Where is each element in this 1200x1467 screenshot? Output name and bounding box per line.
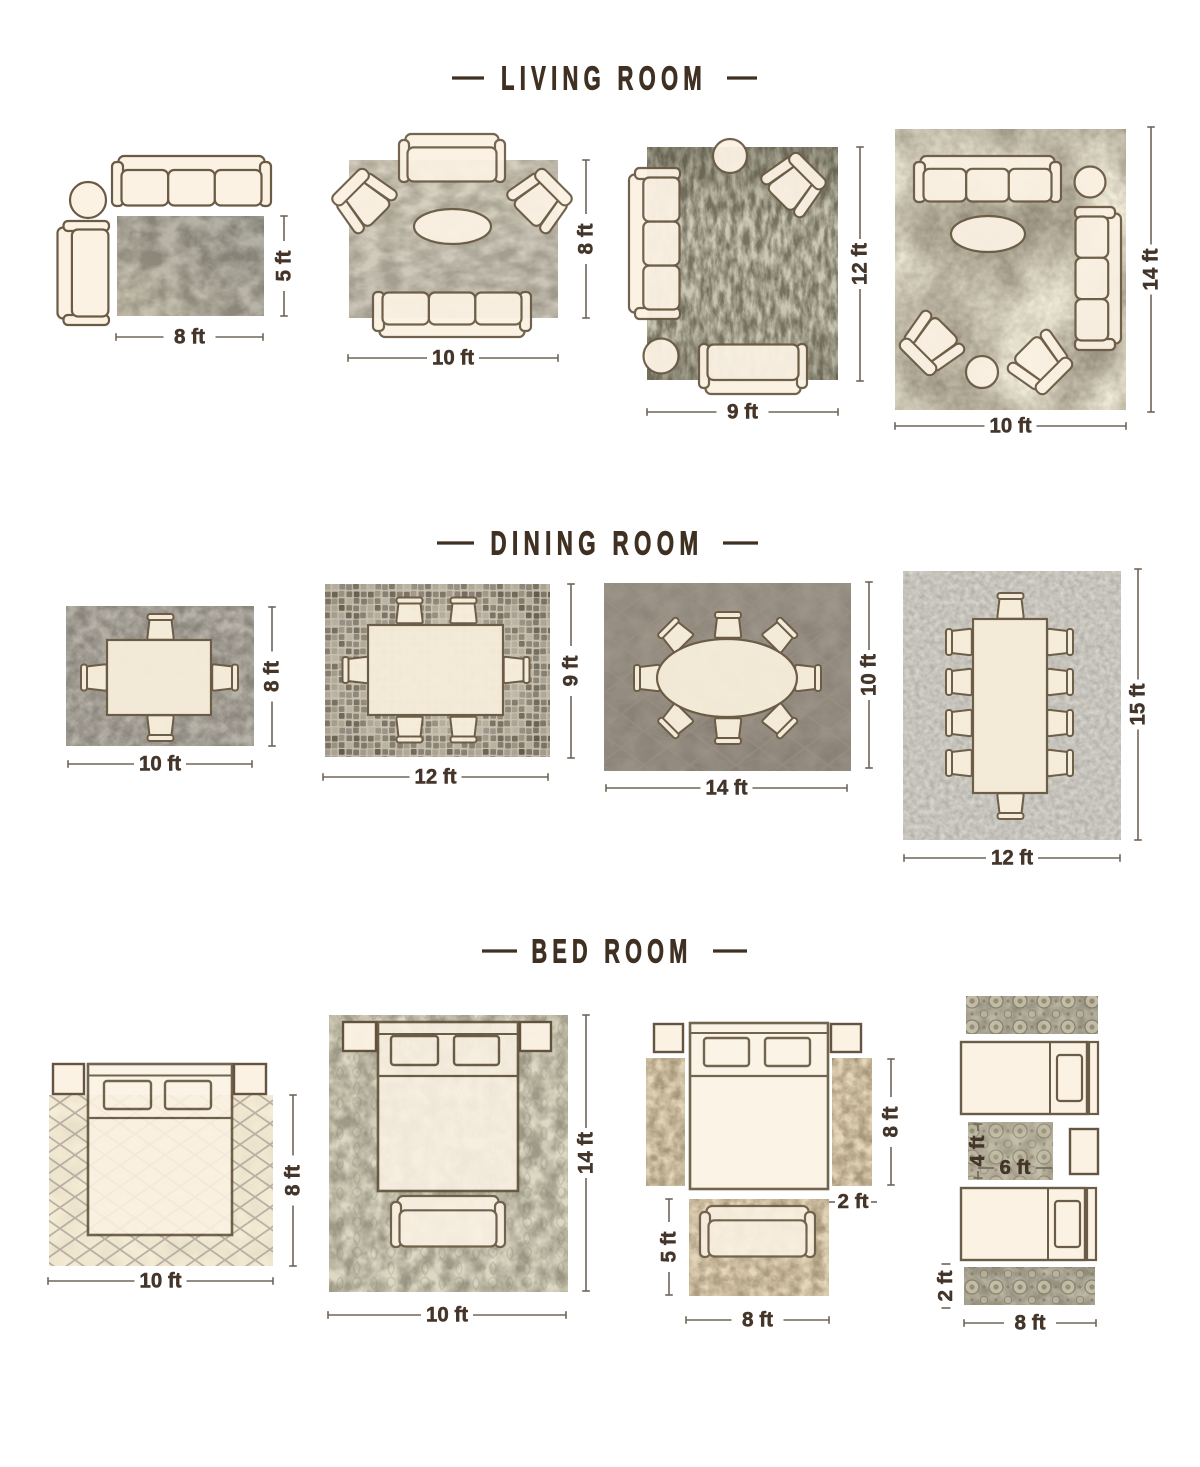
- svg-text:BED ROOM: BED ROOM: [532, 933, 693, 970]
- svg-text:10 ft: 10 ft: [990, 415, 1032, 438]
- svg-text:12 ft: 12 ft: [991, 847, 1033, 870]
- svg-text:5 ft: 5 ft: [273, 250, 296, 281]
- svg-text:8 ft: 8 ft: [261, 661, 284, 692]
- svg-text:6 ft: 6 ft: [1000, 1157, 1031, 1179]
- svg-text:14 ft: 14 ft: [706, 777, 748, 800]
- svg-text:9 ft: 9 ft: [560, 655, 583, 686]
- svg-text:10 ft: 10 ft: [858, 654, 881, 696]
- svg-text:15 ft: 15 ft: [1127, 684, 1150, 726]
- svg-text:4 ft: 4 ft: [967, 1135, 989, 1166]
- svg-text:10 ft: 10 ft: [139, 753, 181, 776]
- svg-text:10 ft: 10 ft: [426, 1304, 468, 1327]
- svg-text:12 ft: 12 ft: [415, 766, 457, 789]
- svg-text:8 ft: 8 ft: [282, 1165, 305, 1196]
- svg-text:8 ft: 8 ft: [742, 1309, 773, 1332]
- svg-text:8 ft: 8 ft: [880, 1106, 903, 1137]
- svg-text:14 ft: 14 ft: [1140, 249, 1163, 291]
- svg-text:9 ft: 9 ft: [727, 401, 758, 424]
- svg-text:DINING ROOM: DINING ROOM: [491, 525, 704, 562]
- svg-text:8 ft: 8 ft: [1015, 1312, 1046, 1335]
- svg-text:5 ft: 5 ft: [658, 1231, 681, 1262]
- svg-text:2 ft: 2 ft: [935, 1270, 957, 1301]
- svg-text:8 ft: 8 ft: [174, 326, 205, 349]
- svg-text:10 ft: 10 ft: [432, 347, 474, 370]
- svg-text:8 ft: 8 ft: [575, 223, 598, 254]
- svg-text:14 ft: 14 ft: [575, 1132, 598, 1174]
- svg-text:2 ft: 2 ft: [838, 1191, 869, 1213]
- svg-text:LIVING ROOM: LIVING ROOM: [501, 60, 707, 97]
- svg-text:12 ft: 12 ft: [849, 243, 872, 285]
- svg-text:10 ft: 10 ft: [140, 1270, 182, 1293]
